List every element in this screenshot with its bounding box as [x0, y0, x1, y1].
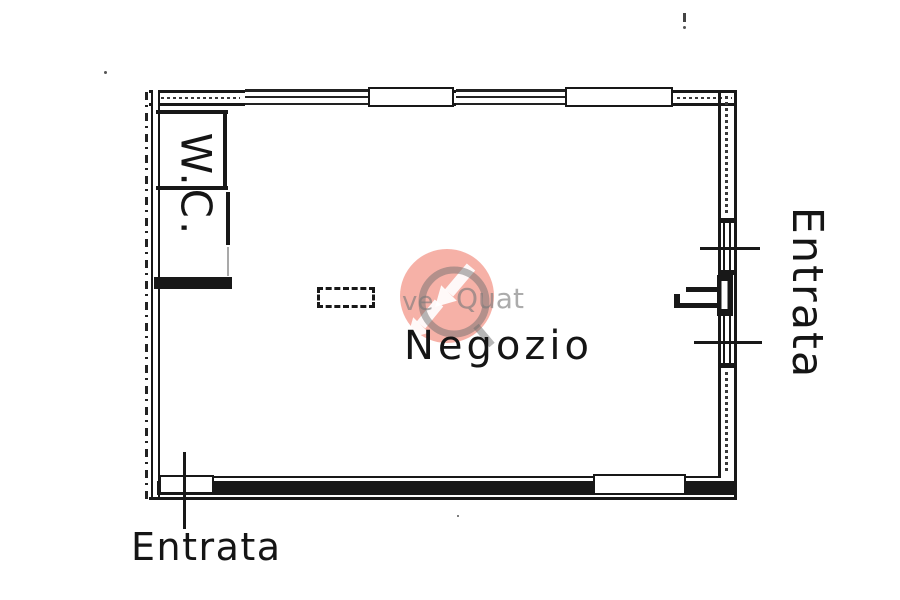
top-wall-pillar-2: [565, 87, 673, 107]
window-extent-tick-bottom: [694, 341, 762, 344]
entrance-tick-line: [183, 452, 186, 529]
stray-speck-topleft: [104, 71, 107, 74]
top-window-2: [456, 89, 566, 106]
top-wall-pillar-1: [368, 87, 454, 107]
floor-plan-canvas: ve Quat: [0, 0, 900, 600]
window-pane-line: [245, 96, 368, 98]
bottom-wall-pillar: [593, 474, 686, 495]
window-pane-line: [245, 89, 368, 92]
watermark-text-right: Quat: [456, 282, 524, 315]
entrance-label-bottom: Entrata: [131, 525, 282, 569]
wc-room2-bottom-wall: [154, 277, 232, 289]
wc-label: W.C.: [172, 133, 221, 238]
counter-dashed-rect: [317, 287, 375, 308]
stray-exclaim-mark: [683, 13, 686, 22]
wc-room1-right-wall: [223, 110, 227, 189]
window-pane-line: [456, 89, 566, 92]
top-wall-core-left: [155, 97, 240, 100]
stray-exclaim-dot: [683, 26, 686, 29]
right-wall-segment-bar-3: [718, 363, 737, 368]
stray-speck-bottom: [457, 515, 459, 517]
window-extent-tick-top: [700, 247, 760, 250]
right-window-2-line: [723, 316, 725, 363]
left-wall: [151, 90, 160, 500]
wc-room1-top-wall: [156, 110, 228, 114]
wc-door-opening-line: [227, 247, 229, 276]
right-wall-core-top: [725, 96, 728, 214]
wc-room2-right-wall: [226, 192, 230, 245]
right-entrance-door: [650, 268, 740, 322]
entrance-label-right: Entrata: [782, 207, 832, 380]
top-window-1: [245, 89, 368, 106]
right-wall-segment-bar-1: [718, 218, 737, 223]
boundary-dashdot-line: [145, 92, 148, 500]
window-pane-line: [245, 103, 368, 106]
bottom-wall-outer-line: [149, 497, 737, 500]
top-wall-core-right: [677, 97, 732, 100]
right-window-2-line: [729, 316, 731, 363]
watermark-text-left: ve: [402, 287, 433, 317]
window-pane-line: [456, 103, 566, 106]
room-label: Negozio: [404, 323, 593, 369]
bottom-entrance-door-rect: [159, 475, 214, 494]
window-pane-line: [456, 96, 566, 98]
right-wall-core-bottom: [725, 372, 728, 474]
